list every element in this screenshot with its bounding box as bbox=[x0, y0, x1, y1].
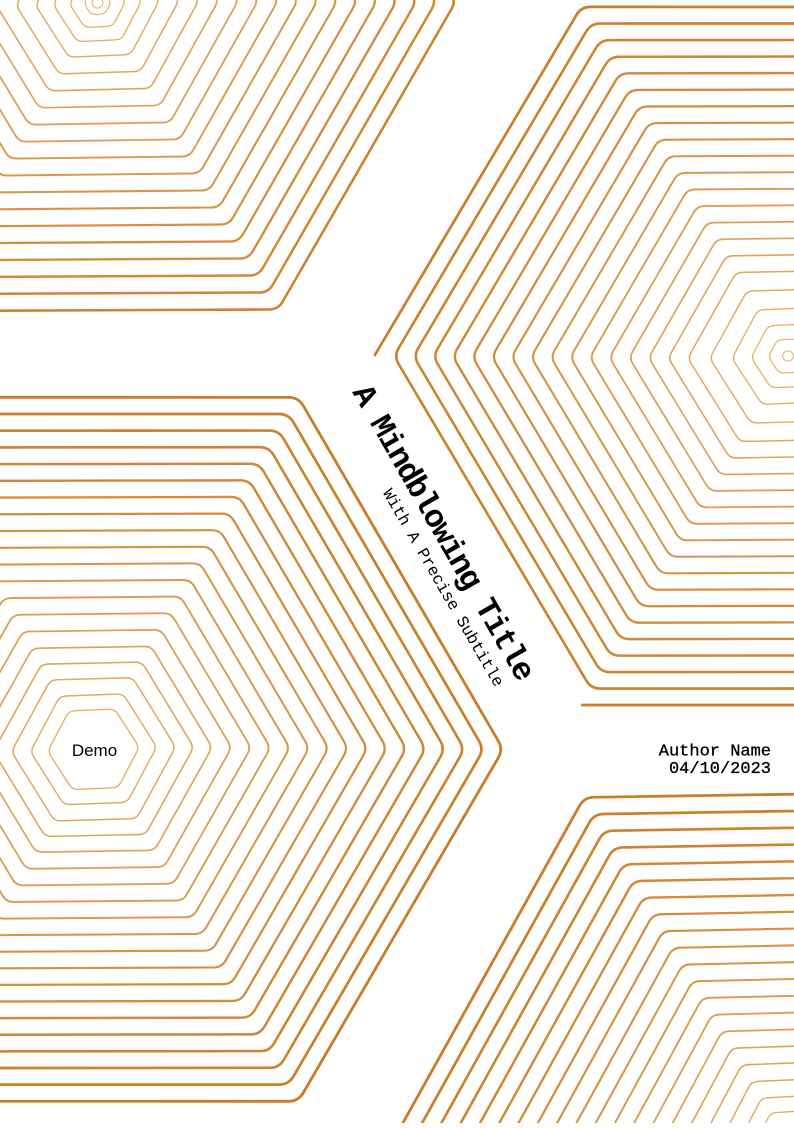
svg-text:Demo: Demo bbox=[72, 741, 117, 760]
svg-text:Author Name: Author Name bbox=[659, 743, 771, 762]
svg-text:04/10/2023: 04/10/2023 bbox=[669, 760, 771, 779]
